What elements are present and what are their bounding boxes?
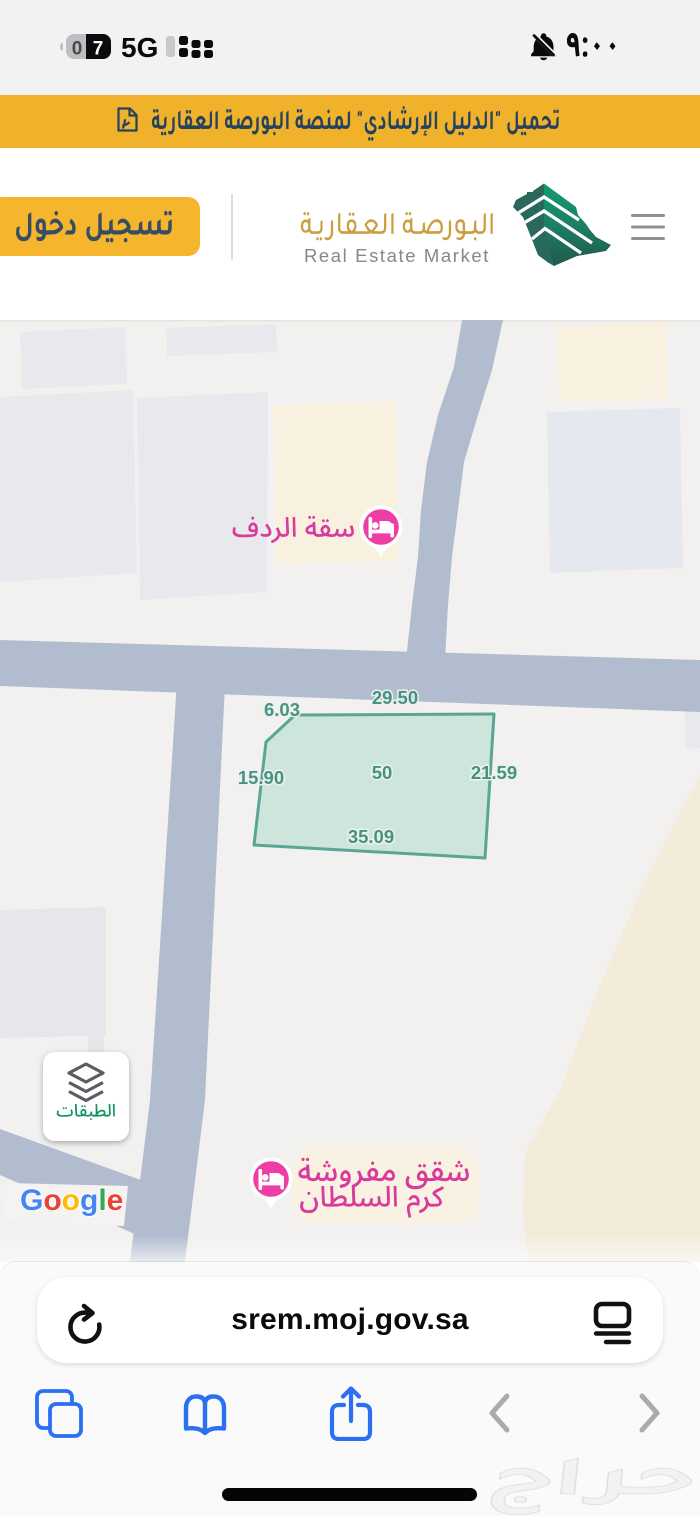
svg-text:21.59: 21.59 [471, 762, 517, 783]
svg-text:Real Estate Market: Real Estate Market [304, 245, 490, 266]
svg-text:Google: Google [20, 1184, 123, 1217]
svg-text:0: 0 [72, 39, 83, 60]
svg-text:7: 7 [93, 39, 104, 60]
svg-text:15.90: 15.90 [238, 767, 284, 788]
svg-text:29.50: 29.50 [372, 687, 418, 708]
svg-text:35.09: 35.09 [348, 826, 394, 847]
svg-text:6.03: 6.03 [264, 699, 300, 720]
svg-text:50: 50 [372, 762, 393, 783]
svg-text:5G: 5G [121, 32, 158, 63]
